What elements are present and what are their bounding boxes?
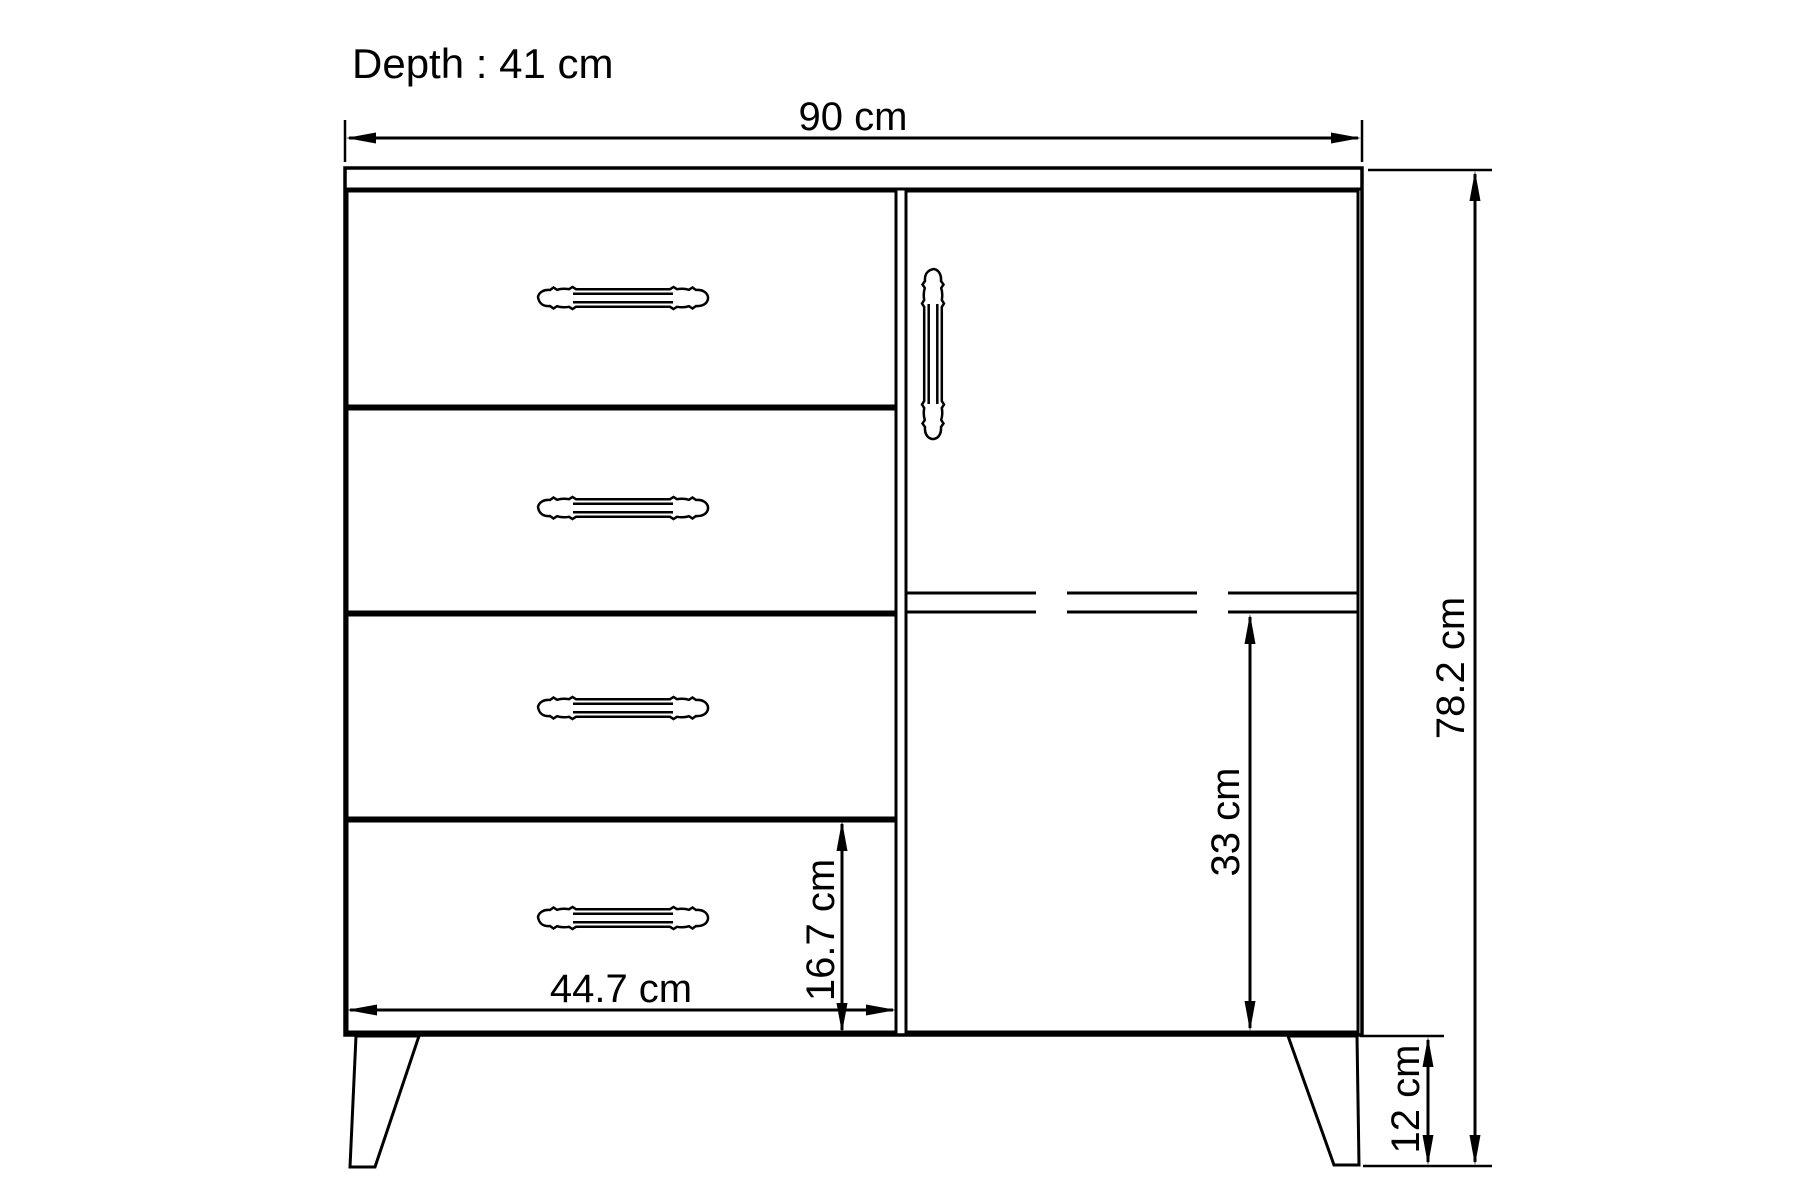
- dim-drawer-width-label: 44.7 cm: [550, 967, 692, 1011]
- furniture-dimension-diagram: 90 cm 78.2 cm 33 cm: [0, 0, 1800, 1200]
- dim-leg-label: 12 cm: [1384, 1045, 1428, 1154]
- drawer-1-handle-icon: [538, 287, 708, 309]
- cabinet-technical-drawing: 90 cm 78.2 cm 33 cm: [0, 0, 1800, 1200]
- drawer-4-handle-icon: [538, 907, 708, 929]
- dim-drawer-height-label: 16.7 cm: [799, 859, 843, 1001]
- dim-height-label: 78.2 cm: [1429, 597, 1473, 739]
- door-handle-icon: [922, 269, 944, 439]
- dim-door-inner-label: 33 cm: [1204, 768, 1248, 877]
- dim-width-label: 90 cm: [799, 95, 908, 139]
- depth-note-label: Depth : 41 cm: [352, 40, 613, 87]
- drawer-2-handle-icon: [538, 497, 708, 519]
- drawer-3-handle-icon: [538, 697, 708, 719]
